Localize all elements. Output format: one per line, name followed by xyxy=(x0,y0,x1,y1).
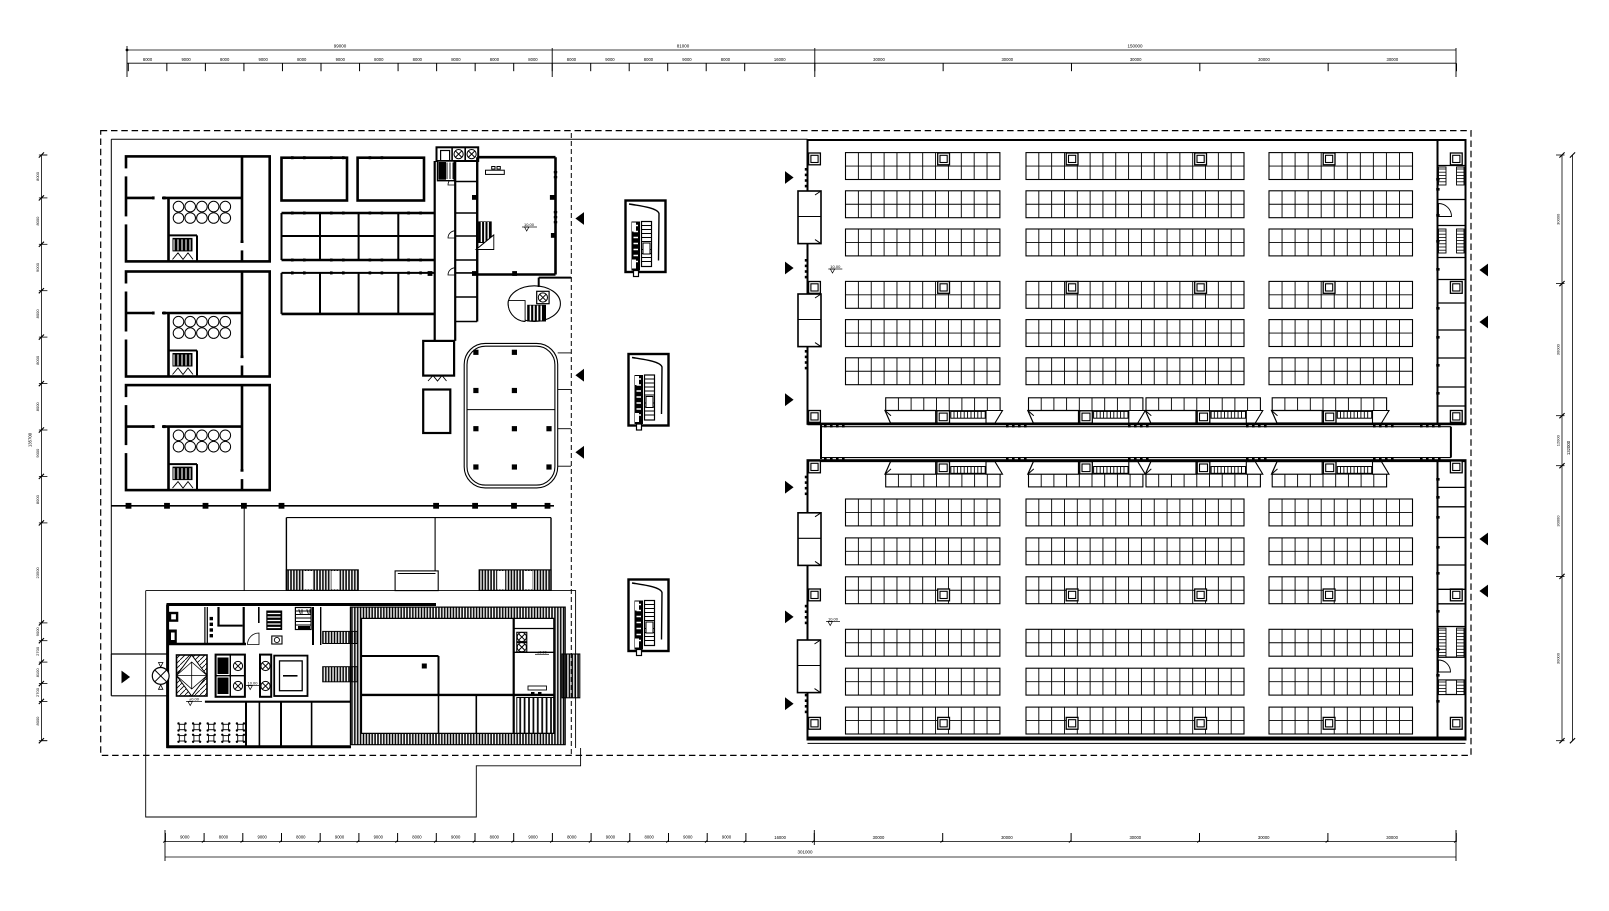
svg-text:30000: 30000 xyxy=(1386,835,1398,840)
svg-text:8000: 8000 xyxy=(296,835,306,840)
svg-text:9000: 9000 xyxy=(451,835,461,840)
svg-text:30000: 30000 xyxy=(1130,57,1142,62)
svg-text:8000: 8000 xyxy=(490,835,500,840)
svg-text:30000: 30000 xyxy=(1556,213,1561,225)
svg-text:8000: 8000 xyxy=(412,835,422,840)
svg-text:2700: 2700 xyxy=(35,646,40,656)
svg-text:12000: 12000 xyxy=(1556,434,1561,446)
svg-text:8000: 8000 xyxy=(35,402,40,412)
svg-text:132000: 132000 xyxy=(1566,440,1571,455)
svg-text:9000: 9000 xyxy=(336,57,346,62)
svg-text:135700: 135700 xyxy=(28,432,33,447)
svg-text:8000: 8000 xyxy=(220,57,230,62)
svg-text:30000: 30000 xyxy=(1387,57,1399,62)
svg-text:9000: 9000 xyxy=(606,835,616,840)
svg-text:±0.00: ±0.00 xyxy=(537,650,546,654)
svg-text:30000: 30000 xyxy=(1001,57,1013,62)
svg-text:8000: 8000 xyxy=(35,355,40,365)
svg-text:301000: 301000 xyxy=(797,850,813,855)
svg-text:8000: 8000 xyxy=(374,57,384,62)
svg-text:30000: 30000 xyxy=(873,57,885,62)
svg-text:10.00: 10.00 xyxy=(828,617,839,622)
svg-text:8000: 8000 xyxy=(644,57,654,62)
svg-text:99000: 99000 xyxy=(334,44,347,49)
svg-text:30000: 30000 xyxy=(1129,835,1141,840)
svg-text:8000: 8000 xyxy=(567,57,577,62)
svg-text:10.00: 10.00 xyxy=(524,222,535,227)
svg-text:30000: 30000 xyxy=(1556,343,1561,355)
svg-text:9000: 9000 xyxy=(683,835,693,840)
svg-text:9000: 9000 xyxy=(374,835,384,840)
svg-text:16000: 16000 xyxy=(774,57,786,62)
svg-text:9000: 9000 xyxy=(35,262,40,272)
svg-text:30000: 30000 xyxy=(873,835,885,840)
svg-text:9000: 9000 xyxy=(259,57,269,62)
svg-text:8000: 8000 xyxy=(35,171,40,181)
svg-text:30000: 30000 xyxy=(1258,835,1270,840)
svg-text:8100: 8100 xyxy=(35,668,40,678)
svg-text:9000: 9000 xyxy=(257,835,267,840)
svg-text:81000: 81000 xyxy=(677,44,690,49)
svg-text:150000: 150000 xyxy=(1127,44,1143,49)
svg-text:8000: 8000 xyxy=(35,494,40,504)
svg-text:8000: 8000 xyxy=(35,716,40,726)
svg-text:30000: 30000 xyxy=(1258,57,1270,62)
svg-text:8000: 8000 xyxy=(143,57,153,62)
svg-text:16000: 16000 xyxy=(774,835,786,840)
svg-text:9000: 9000 xyxy=(682,57,692,62)
svg-text:2700: 2700 xyxy=(35,687,40,697)
svg-text:30000: 30000 xyxy=(1556,652,1561,664)
svg-text:23500: 23500 xyxy=(35,567,40,579)
svg-text:9000: 9000 xyxy=(180,835,190,840)
svg-text:8000: 8000 xyxy=(490,57,500,62)
svg-text:8000: 8000 xyxy=(297,57,307,62)
svg-text:10.00: 10.00 xyxy=(830,264,841,269)
svg-text:9000: 9000 xyxy=(181,57,191,62)
svg-text:8000: 8000 xyxy=(35,309,40,319)
svg-text:9000: 9000 xyxy=(35,627,40,637)
svg-text:8000: 8000 xyxy=(451,57,461,62)
svg-text:8000: 8000 xyxy=(644,835,654,840)
svg-text:9000: 9000 xyxy=(528,835,538,840)
svg-text:9000: 9000 xyxy=(722,835,732,840)
svg-text:8000: 8000 xyxy=(413,57,423,62)
svg-text:9000: 9000 xyxy=(35,448,40,458)
svg-text:8000: 8000 xyxy=(219,835,229,840)
svg-text:±0.00: ±0.00 xyxy=(189,697,200,702)
svg-text:30000: 30000 xyxy=(1556,515,1561,527)
svg-text:30000: 30000 xyxy=(1001,835,1013,840)
svg-text:9000: 9000 xyxy=(335,835,345,840)
svg-text:8000: 8000 xyxy=(567,835,577,840)
svg-text:8000: 8000 xyxy=(721,57,731,62)
svg-text:10.00: 10.00 xyxy=(247,681,258,686)
svg-text:8000: 8000 xyxy=(528,57,538,62)
svg-text:8000: 8000 xyxy=(35,216,40,226)
svg-text:9000: 9000 xyxy=(605,57,615,62)
